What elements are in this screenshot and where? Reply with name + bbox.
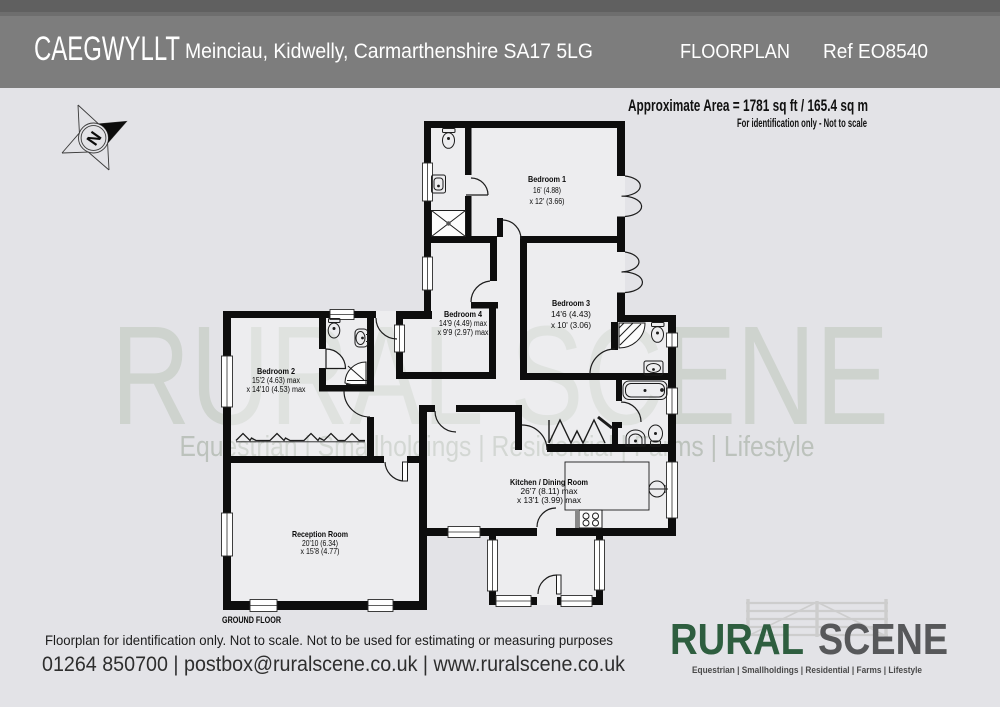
svg-text:Approximate Area = 1781 sq ft: Approximate Area = 1781 sq ft / 165.4 sq… — [628, 97, 868, 115]
svg-text:Bedroom 1: Bedroom 1 — [528, 175, 566, 184]
svg-text:Bedroom 2: Bedroom 2 — [257, 367, 295, 376]
svg-text:For identification only - Not: For identification only - Not to scale — [737, 118, 867, 130]
svg-text:Kitchen / Dining Room: Kitchen / Dining Room — [510, 478, 588, 487]
svg-text:14'6 (4.43): 14'6 (4.43) — [551, 310, 591, 319]
svg-text:Floorplan for identification o: Floorplan for identification only. Not t… — [45, 633, 613, 648]
svg-text:x 9'9 (2.97) max: x 9'9 (2.97) max — [438, 328, 489, 337]
svg-text:14'9 (4.49) max: 14'9 (4.49) max — [439, 319, 487, 328]
svg-text:x 14'10 (4.53) max: x 14'10 (4.53) max — [247, 385, 306, 394]
svg-text:FLOORPLAN: FLOORPLAN — [680, 41, 790, 63]
svg-text:15'2 (4.63) max: 15'2 (4.63) max — [252, 376, 300, 385]
svg-text:Bedroom 4: Bedroom 4 — [444, 310, 482, 319]
svg-text:Ref EO8540: Ref EO8540 — [823, 41, 928, 63]
svg-text:Meinciau, Kidwelly, Carmarthen: Meinciau, Kidwelly, Carmarthenshire SA17… — [185, 40, 593, 63]
svg-text:x 10' (3.06): x 10' (3.06) — [551, 321, 591, 330]
svg-text:16' (4.88): 16' (4.88) — [533, 186, 561, 195]
svg-text:Reception Room: Reception Room — [292, 530, 348, 539]
svg-text:CAEGWYLLT: CAEGWYLLT — [34, 30, 180, 68]
svg-text:01264 850700 | postbox@ruralsc: 01264 850700 | postbox@ruralscene.co.uk … — [42, 652, 625, 676]
svg-text:Bedroom 3: Bedroom 3 — [552, 299, 590, 308]
svg-text:Equestrian | Smallholdings | R: Equestrian | Smallholdings | Residential… — [692, 665, 922, 676]
svg-text:x 15'8 (4.77): x 15'8 (4.77) — [301, 547, 340, 556]
svg-text:GROUND FLOOR: GROUND FLOOR — [222, 615, 281, 626]
svg-text:26'7 (8.11) max: 26'7 (8.11) max — [521, 487, 578, 496]
svg-text:x 12' (3.66): x 12' (3.66) — [530, 197, 565, 206]
svg-text:SCENE: SCENE — [818, 615, 948, 664]
svg-text:x 13'1 (3.99) max: x 13'1 (3.99) max — [517, 496, 581, 505]
svg-text:RURAL: RURAL — [670, 615, 804, 664]
